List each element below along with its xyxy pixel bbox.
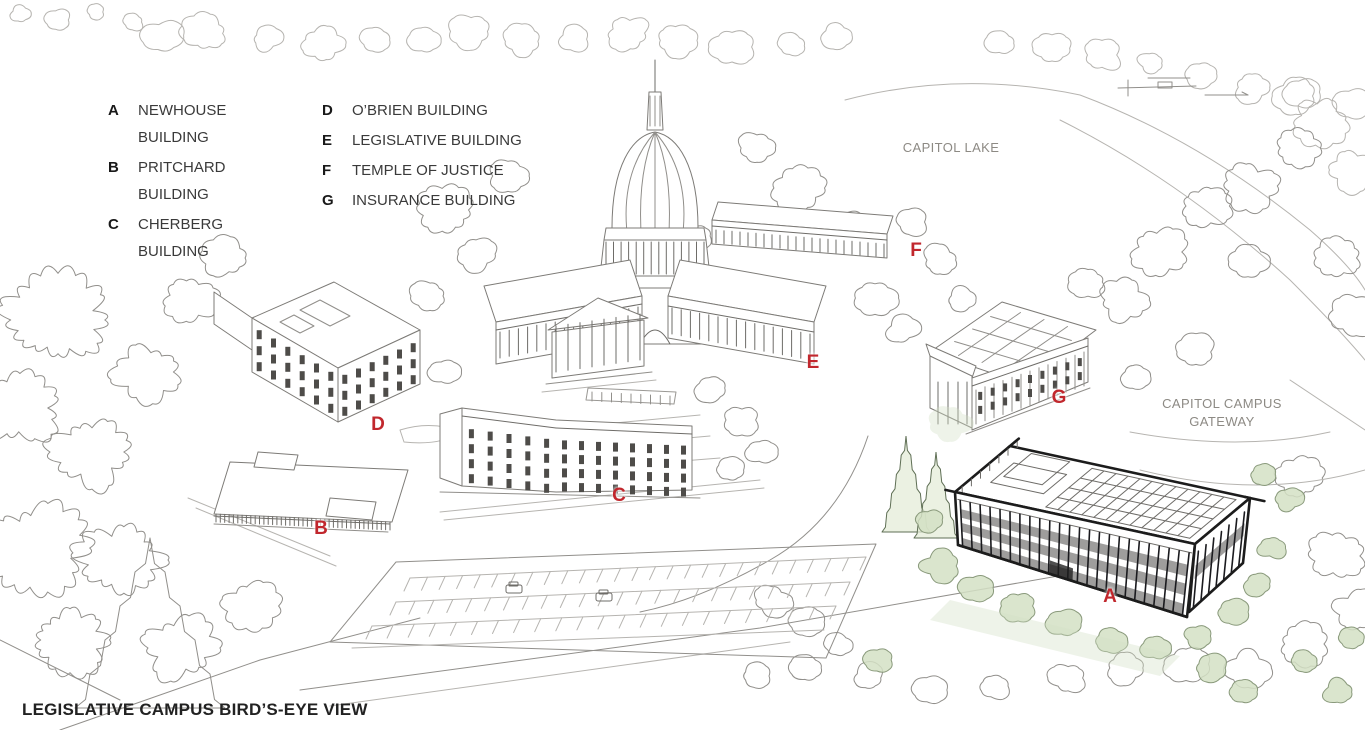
map-marker-e: E	[807, 352, 820, 374]
legend-key-letter: F	[322, 157, 352, 184]
legend-item-g: GINSURANCE BUILDING	[322, 187, 524, 214]
legend-building-name: O’BRIEN BUILDING	[352, 97, 524, 124]
legend-building-name: PRITCHARD BUILDING	[138, 154, 250, 208]
legend-building-name: LEGISLATIVE BUILDING	[352, 127, 524, 154]
legend-item-f: FTEMPLE OF JUSTICE	[322, 157, 524, 184]
building-legend: ANEWHOUSE BUILDINGBPRITCHARD BUILDINGCCH…	[108, 97, 524, 268]
legend-key-letter: A	[108, 97, 138, 151]
map-marker-b: B	[314, 518, 328, 540]
legend-key-letter: G	[322, 187, 352, 214]
legend-key-letter: D	[322, 97, 352, 124]
legend-column-right: DO’BRIEN BUILDINGELEGISLATIVE BUILDINGFT…	[322, 97, 524, 268]
map-marker-a: A	[1103, 586, 1117, 608]
legend-item-e: ELEGISLATIVE BUILDING	[322, 127, 524, 154]
map-marker-c: C	[612, 485, 626, 507]
map-marker-d: D	[371, 414, 385, 436]
legend-item-a: ANEWHOUSE BUILDING	[108, 97, 250, 151]
legend-column-left: ANEWHOUSE BUILDINGBPRITCHARD BUILDINGCCH…	[108, 97, 250, 268]
legend-key-letter: C	[108, 211, 138, 265]
legend-item-d: DO’BRIEN BUILDING	[322, 97, 524, 124]
legend-building-name: NEWHOUSE BUILDING	[138, 97, 250, 151]
legend-building-name: INSURANCE BUILDING	[352, 187, 524, 214]
legend-item-c: CCHERBERG BUILDING	[108, 211, 250, 265]
capitol-campus-gateway-label: CAPITOL CAMPUS GATEWAY	[1142, 395, 1302, 431]
legend-key-letter: B	[108, 154, 138, 208]
map-marker-g: G	[1052, 387, 1067, 409]
capitol-lake-label: CAPITOL LAKE	[881, 139, 1021, 157]
illustration-canvas: ANEWHOUSE BUILDINGBPRITCHARD BUILDINGCCH…	[0, 0, 1365, 730]
legend-item-b: BPRITCHARD BUILDING	[108, 154, 250, 208]
caption: LEGISLATIVE CAMPUS BIRD’S-EYE VIEW	[22, 700, 368, 720]
legend-building-name: CHERBERG BUILDING	[138, 211, 250, 265]
legend-building-name: TEMPLE OF JUSTICE	[352, 157, 524, 184]
legend-key-letter: E	[322, 127, 352, 154]
map-marker-f: F	[910, 240, 922, 262]
